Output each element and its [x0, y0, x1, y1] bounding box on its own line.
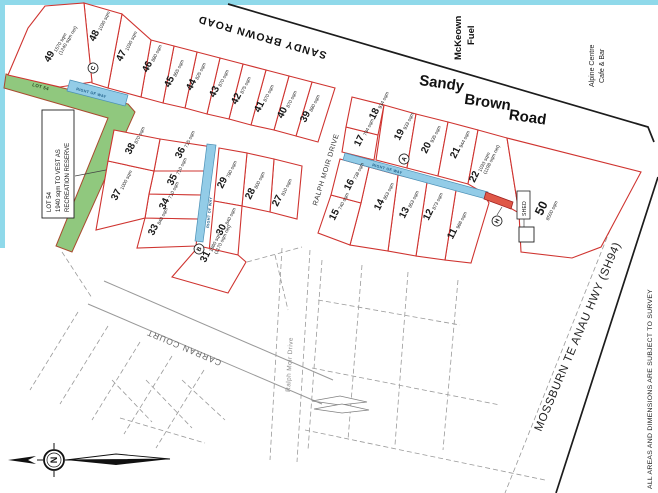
road-label-road: Road — [508, 107, 548, 129]
marker-h: H — [490, 214, 503, 227]
existing-parcel-line — [62, 252, 92, 298]
existing-parcel-line — [60, 326, 108, 404]
road-label-mossburn-te-anau-hwy: MOSSBURN TE ANAU HWY (SH94) — [533, 240, 624, 433]
subdivision-plan-page: LOT 54 RIGHT OF WAYRIGHT OF WAYRIGHT OF … — [0, 0, 658, 493]
north-arrow-compass: N — [8, 443, 170, 477]
existing-parcel-line — [318, 300, 460, 325]
lot-34-boundary — [145, 194, 203, 219]
existing-parcel-line — [297, 250, 310, 462]
road-label-ralph-moir-drive-lower: Ralph Moir Drive — [285, 337, 295, 392]
alpine-line1: Alpine Centre — [589, 44, 596, 87]
alpine-line2: Cafe & Bar — [599, 48, 606, 83]
existing-parcel-line — [275, 255, 288, 310]
mckeown-line1: McKeown — [453, 15, 464, 60]
lot-49-boundary — [8, 3, 92, 87]
disclaimer-text: ALL AREAS AND DIMENSIONS ARE SUBJECT TO … — [647, 289, 654, 489]
existing-parcel-line — [247, 247, 302, 262]
compass-west-needle — [8, 456, 36, 464]
drain-lens-mark — [314, 404, 369, 413]
page-border-top — [0, 0, 658, 5]
existing-parcel-line — [112, 380, 152, 422]
existing-parcel-line — [146, 380, 192, 428]
mckeown-line2: Fuel — [466, 25, 477, 45]
shed-building-square — [519, 227, 534, 242]
existing-parcel-line — [182, 380, 225, 420]
reserve-label-line2: 1940 sqm TO VEST AS — [56, 149, 62, 212]
subdivision-plan-map: LOT 54 RIGHT OF WAYRIGHT OF WAYRIGHT OF … — [0, 0, 658, 493]
compass-east-needle-fill — [66, 459, 170, 465]
reserve-label-line3: RECREATION RESERVE — [65, 143, 71, 212]
existing-parcel-line — [348, 265, 362, 440]
marker-h-leader — [497, 207, 502, 215]
landmark-alpine-centre: Alpine Centre Cafe & Bar — [589, 44, 606, 87]
compass-north-letter: N — [49, 457, 59, 464]
existing-parcel-line — [120, 418, 205, 443]
road-label-brown: Brown — [463, 91, 512, 114]
shed-label: SHED — [522, 201, 528, 216]
road-label-sandy: Sandy — [418, 72, 466, 95]
existing-parcel-line — [305, 430, 545, 480]
reserve-label-line1: LOT 54 — [47, 191, 53, 212]
landmark-mckeown-fuel: McKeown Fuel — [453, 15, 477, 60]
existing-parcel-line — [308, 260, 322, 450]
existing-parcel-line — [92, 342, 140, 420]
compass-east-needle-outline — [66, 454, 170, 460]
existing-parcel-line — [124, 356, 172, 434]
road-label-sandy-brown-road-top: SANDY BROWN ROAD — [196, 13, 327, 61]
page-border-left — [0, 0, 5, 248]
existing-parcel-line — [443, 280, 458, 450]
road-label-carran-court: CARRAN COURT — [145, 327, 223, 368]
existing-parcel-line — [395, 272, 408, 445]
existing-parcel-line — [30, 312, 78, 390]
existing-parcel-line — [156, 370, 204, 448]
